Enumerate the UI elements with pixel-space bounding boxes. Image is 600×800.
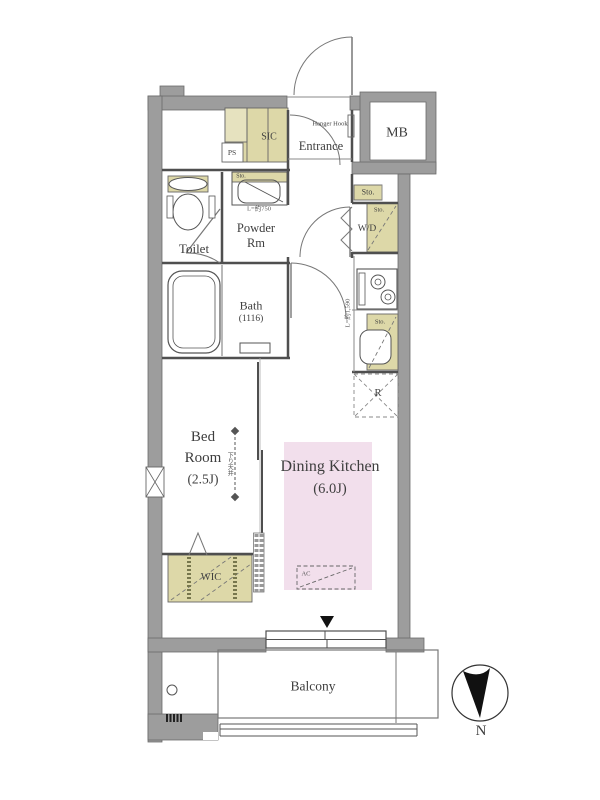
sic-label: SIC (261, 132, 277, 143)
bath-door-arc (291, 263, 346, 318)
powder-label-2: Rm (247, 237, 265, 251)
north-compass (452, 665, 508, 721)
powder-door-arc (300, 207, 350, 257)
bedroom-window (146, 467, 164, 497)
powder-label-1: Powder (237, 222, 275, 236)
entrance-label: Entrance (299, 140, 343, 154)
sic-left-shelf (225, 108, 247, 142)
bedroom-size-label: (2.5J) (187, 473, 218, 488)
powder-sto-label: Sto. (236, 174, 246, 181)
wic-folding-door (189, 533, 207, 555)
balcony-railing (220, 724, 417, 736)
kitchen-length-note: L=約1,590 (344, 299, 351, 328)
balcony-window (266, 631, 386, 648)
dk-size-label: (6.0J) (313, 482, 346, 498)
ps-label: PS (228, 149, 236, 157)
mb-label: MB (386, 125, 408, 140)
kitchen-stove (357, 269, 397, 309)
powder-counter-note: L=約750 (247, 205, 271, 212)
bath-label: Bath (240, 299, 263, 312)
bath-step (240, 343, 270, 353)
entry-direction-marker (320, 616, 334, 628)
hanger-hook-label: Hanger Hook (311, 120, 349, 127)
ac-label: AC (301, 570, 310, 577)
bath-size-label: (1116) (239, 314, 264, 324)
fridge-label: R (374, 388, 381, 400)
exterior-dot (167, 685, 177, 695)
bedroom-annotation: 下り天井 (226, 452, 233, 476)
bedroom-label-2: Room (185, 450, 222, 467)
roller-screen (254, 533, 265, 592)
dk-label: Dining Kitchen (280, 458, 379, 476)
wd-label: W/D (358, 224, 376, 234)
balcony-label: Balcony (291, 680, 336, 695)
wic-label: WIC (201, 572, 221, 584)
compass-label: N (476, 723, 487, 740)
sto-upper-label: Sto. (362, 189, 375, 198)
wd-sto-label: Sto. (374, 206, 384, 213)
front-door (294, 37, 352, 95)
bedroom-label-1: Bed (191, 429, 215, 446)
kitchen-sto-label: Sto. (375, 318, 385, 325)
toilet-label: Toilet (179, 242, 209, 256)
partition-sliding-door (258, 358, 262, 533)
floor-plan: Entrance Hanger Hook MB SIC PS Toilet Po… (0, 0, 600, 800)
